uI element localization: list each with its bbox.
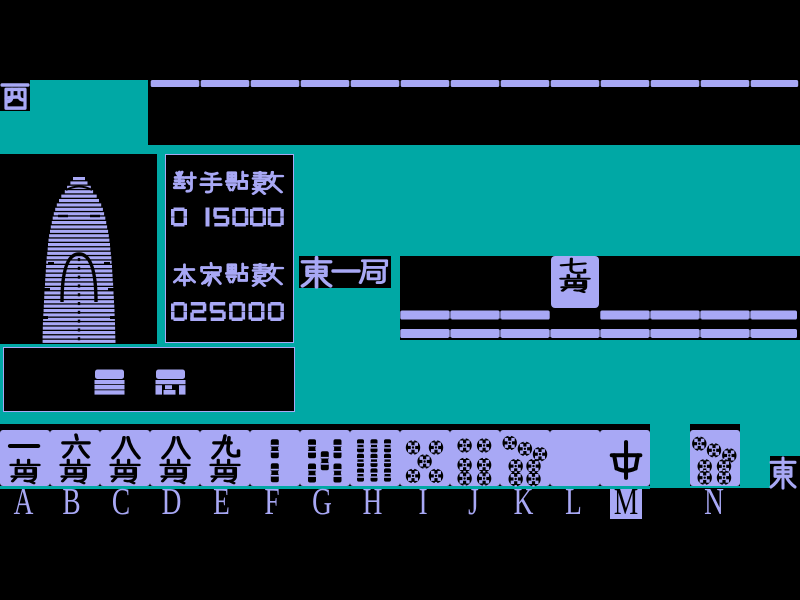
svg-text:B: B bbox=[62, 481, 80, 523]
svg-text:N: N bbox=[704, 481, 724, 523]
svg-text:L: L bbox=[565, 481, 582, 523]
svg-text:A: A bbox=[14, 481, 34, 523]
svg-text:H: H bbox=[363, 481, 383, 523]
svg-text:M: M bbox=[614, 481, 638, 523]
svg-text:F: F bbox=[264, 481, 279, 523]
svg-text:G: G bbox=[312, 481, 332, 523]
svg-text:J: J bbox=[468, 481, 479, 523]
svg-text:K: K bbox=[514, 481, 534, 523]
svg-text:D: D bbox=[162, 481, 182, 523]
svg-text:C: C bbox=[112, 481, 130, 523]
svg-text:E: E bbox=[213, 481, 230, 523]
svg-text:I: I bbox=[418, 481, 427, 523]
